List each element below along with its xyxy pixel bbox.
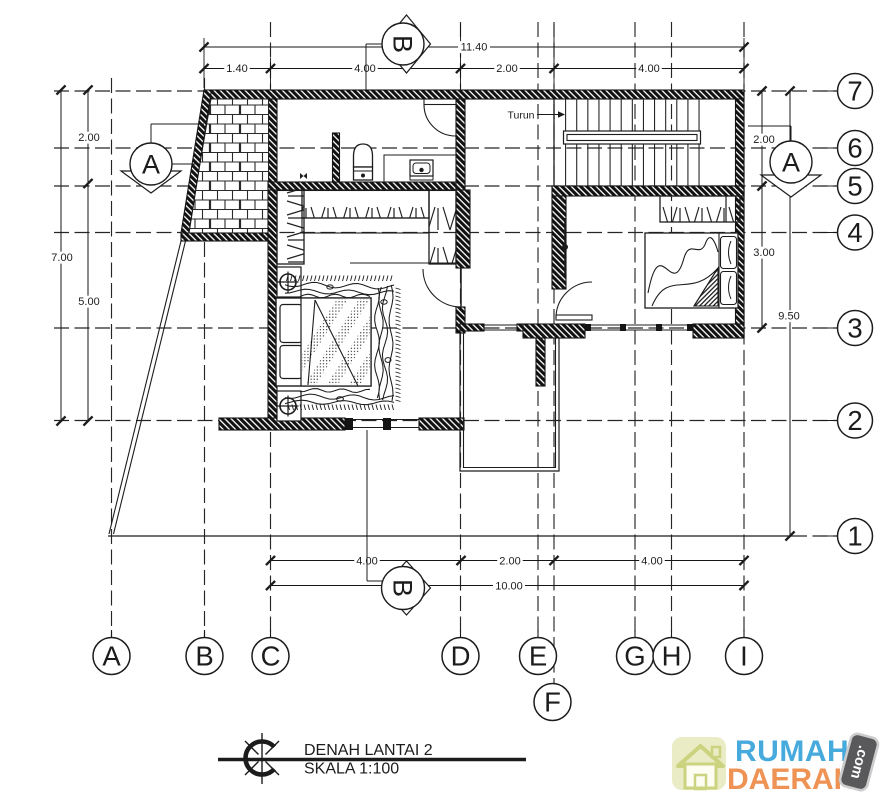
svg-text:B: B xyxy=(195,641,213,672)
svg-text:A: A xyxy=(782,147,800,177)
svg-text:3.00: 3.00 xyxy=(753,247,774,259)
svg-text:3: 3 xyxy=(847,313,862,344)
svg-text:2.00: 2.00 xyxy=(496,63,517,75)
svg-text:1.40: 1.40 xyxy=(226,63,247,75)
svg-text:2.00: 2.00 xyxy=(753,134,774,146)
svg-text:2.00: 2.00 xyxy=(499,556,520,568)
svg-text:C: C xyxy=(261,641,281,672)
svg-text:DAERAH: DAERAH xyxy=(727,763,855,796)
svg-text:Turun: Turun xyxy=(507,110,534,122)
svg-text:F: F xyxy=(544,687,561,718)
svg-text:6: 6 xyxy=(847,133,862,164)
svg-text:SKALA 1:100: SKALA 1:100 xyxy=(304,761,399,778)
svg-text:H: H xyxy=(662,641,682,672)
svg-text:2: 2 xyxy=(847,405,862,436)
svg-text:B: B xyxy=(388,35,418,53)
svg-text:A: A xyxy=(102,641,121,672)
svg-text:2.00: 2.00 xyxy=(78,132,99,144)
svg-text:7: 7 xyxy=(847,76,862,107)
svg-text:B: B xyxy=(388,579,418,597)
svg-text:DENAH LANTAI 2: DENAH LANTAI 2 xyxy=(304,742,433,759)
svg-text:9.50: 9.50 xyxy=(778,311,799,323)
svg-text:4: 4 xyxy=(847,217,862,248)
svg-text:1: 1 xyxy=(847,521,862,552)
svg-text:10.00: 10.00 xyxy=(495,581,523,593)
svg-text:5.00: 5.00 xyxy=(78,296,99,308)
svg-text:I: I xyxy=(740,641,748,672)
svg-text:5: 5 xyxy=(847,171,862,202)
svg-text:4.00: 4.00 xyxy=(354,63,375,75)
svg-text:E: E xyxy=(529,641,547,672)
svg-text:D: D xyxy=(451,641,471,672)
svg-text:G: G xyxy=(624,641,645,672)
svg-text:4.00: 4.00 xyxy=(641,556,662,568)
svg-text:11.40: 11.40 xyxy=(461,42,488,54)
svg-text:A: A xyxy=(142,149,160,179)
svg-text:7.00: 7.00 xyxy=(51,252,72,264)
svg-text:4.00: 4.00 xyxy=(638,63,659,75)
